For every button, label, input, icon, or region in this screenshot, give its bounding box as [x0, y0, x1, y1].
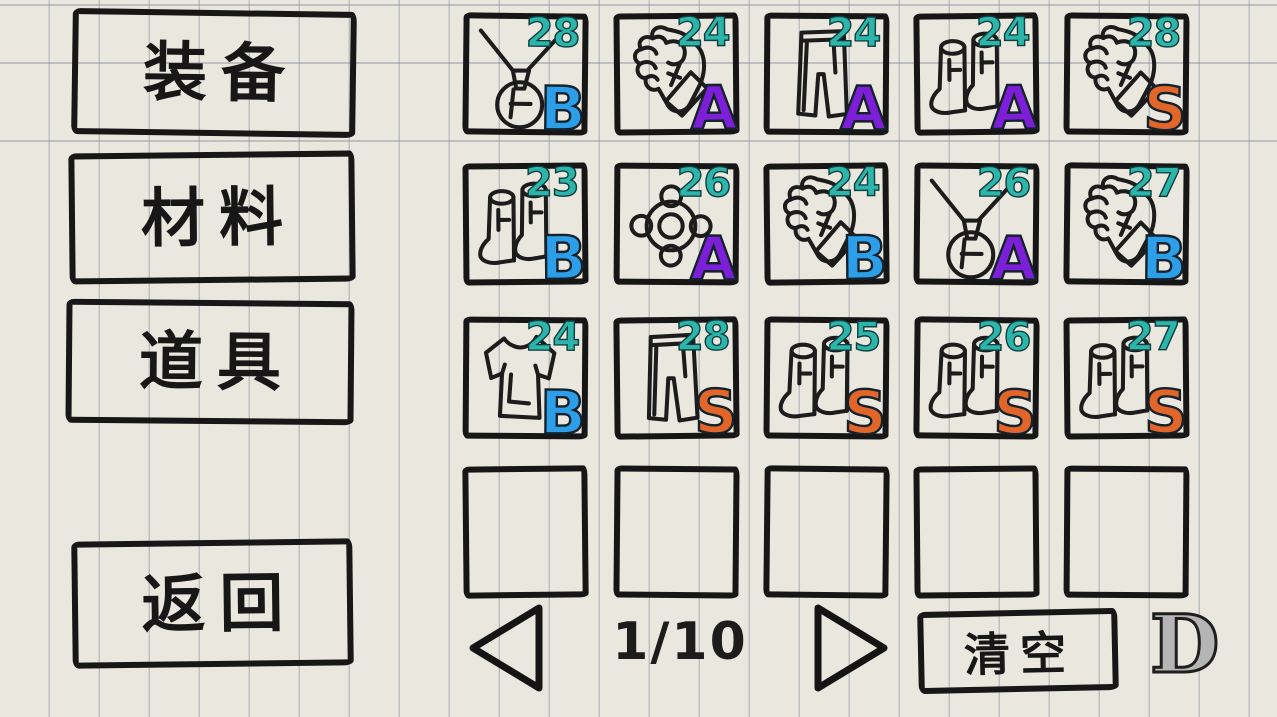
next-page-button[interactable] — [810, 602, 892, 697]
tab-items-label: 道具 — [125, 329, 296, 394]
empty-slot[interactable] — [613, 465, 739, 598]
empty-slot[interactable] — [1064, 466, 1190, 599]
item-level: 26 — [977, 163, 1031, 203]
prev-page-button[interactable] — [465, 602, 547, 697]
back-button[interactable]: 返回 — [71, 538, 354, 668]
item-slot[interactable]: 26A — [614, 163, 740, 286]
clear-button-label: 清空 — [963, 617, 1076, 685]
empty-slot[interactable] — [913, 465, 1039, 598]
empty-slot[interactable] — [763, 465, 889, 598]
item-level: 24 — [976, 12, 1030, 53]
item-level: 24 — [826, 13, 880, 53]
item-level: 28 — [526, 13, 580, 54]
item-level: 25 — [827, 317, 881, 357]
item-slot[interactable]: 24A — [764, 13, 890, 136]
difficulty-badge[interactable]: D — [1150, 604, 1219, 684]
clear-button[interactable]: 清空 — [917, 608, 1119, 694]
item-slot[interactable]: 24B — [763, 162, 889, 285]
empty-slot[interactable] — [462, 465, 588, 598]
item-slot[interactable]: 24B — [463, 317, 589, 440]
tab-equipment-label: 装备 — [129, 40, 300, 106]
item-slot[interactable]: 27S — [1063, 316, 1189, 439]
item-slot[interactable]: 24A — [913, 12, 1039, 135]
item-grade: A — [691, 78, 738, 138]
item-level: 26 — [977, 317, 1031, 358]
item-slot[interactable]: 26S — [913, 316, 1039, 439]
left-arrow-icon — [465, 602, 547, 694]
item-slot[interactable]: 24A — [613, 12, 739, 135]
item-grade: A — [840, 79, 887, 139]
item-level: 24 — [525, 317, 579, 357]
item-slot[interactable]: 27B — [1063, 162, 1189, 285]
tab-materials-label: 材料 — [127, 185, 298, 251]
back-button-label: 返回 — [127, 570, 298, 636]
item-slot[interactable]: 28S — [1063, 12, 1189, 135]
item-grade: B — [1141, 229, 1187, 289]
item-grade: A — [690, 229, 737, 289]
item-level: 26 — [676, 163, 730, 203]
item-slot[interactable]: 25S — [763, 316, 889, 439]
item-grade: S — [843, 383, 887, 443]
item-grade: S — [1144, 382, 1188, 442]
item-grade: B — [540, 79, 586, 139]
right-arrow-icon — [810, 602, 892, 694]
item-level: 27 — [1127, 163, 1181, 204]
item-grade: B — [540, 228, 586, 288]
item-grade: S — [993, 383, 1037, 443]
item-grade: A — [990, 229, 1037, 289]
item-slot[interactable]: 28S — [613, 316, 739, 439]
paper-hline — [0, 4, 1277, 6]
tab-equipment[interactable]: 装备 — [71, 8, 357, 138]
item-slot[interactable]: 28B — [462, 12, 588, 135]
item-level: 28 — [1127, 13, 1181, 53]
item-slot[interactable]: 26A — [913, 162, 1039, 285]
item-grade: S — [694, 382, 738, 442]
tab-items[interactable]: 道具 — [65, 299, 354, 426]
page-indicator: 1/10 — [605, 612, 755, 672]
item-level: 28 — [676, 316, 730, 357]
item-level: 23 — [525, 163, 579, 203]
item-grade: B — [540, 383, 586, 443]
item-level: 24 — [676, 13, 730, 53]
item-level: 27 — [1126, 317, 1180, 357]
item-grade: S — [1143, 79, 1187, 139]
item-slot[interactable]: 23B — [462, 162, 588, 285]
paper-hline — [0, 140, 1277, 142]
item-grade: A — [991, 78, 1038, 138]
item-level: 24 — [826, 162, 880, 203]
item-grade: B — [841, 228, 887, 288]
tab-materials[interactable]: 材料 — [68, 151, 355, 285]
